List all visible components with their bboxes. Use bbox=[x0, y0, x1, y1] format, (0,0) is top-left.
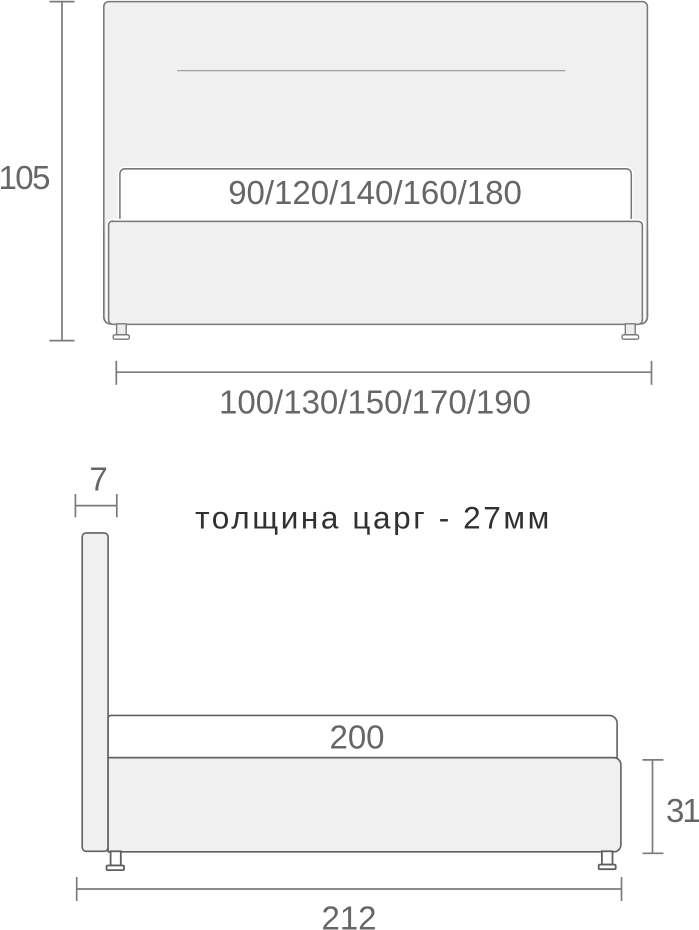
svg-text:толщина царг - 27мм: толщина царг - 27мм bbox=[195, 499, 552, 535]
svg-text:7: 7 bbox=[89, 461, 107, 498]
svg-text:212: 212 bbox=[321, 900, 376, 930]
svg-text:31: 31 bbox=[666, 792, 699, 829]
svg-text:100/130/150/170/190: 100/130/150/170/190 bbox=[219, 384, 531, 421]
svg-text:90/120/140/160/180: 90/120/140/160/180 bbox=[228, 174, 522, 211]
svg-text:105: 105 bbox=[0, 159, 49, 196]
svg-text:200: 200 bbox=[329, 719, 384, 756]
